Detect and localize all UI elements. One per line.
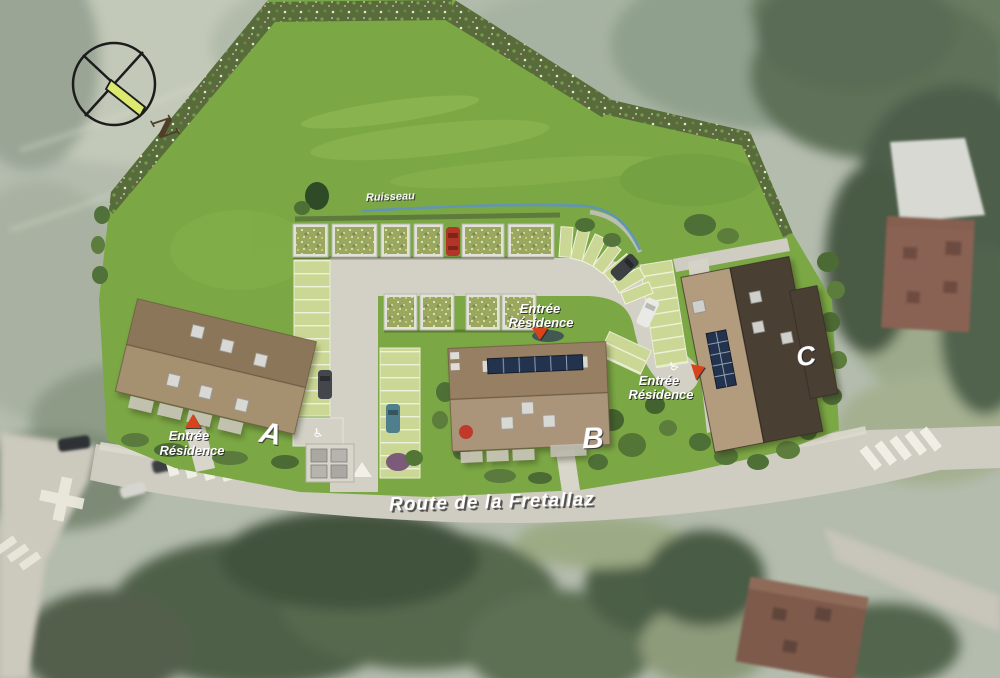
stream-label: Ruisseau: [366, 190, 416, 204]
entrance-label-c-line2: Résidence: [628, 387, 693, 402]
entrance-label-a-line1: Entrée: [169, 428, 209, 443]
entrance-label-c-line1: Entrée: [639, 373, 679, 388]
entrance-label-b-line1: Entrée: [520, 301, 560, 316]
carport-row-top: [293, 224, 554, 258]
site-plan-canvas: ♿ ♿ N Ruisseau Entrée Résidence Entrée R…: [0, 0, 1000, 678]
bin-store: [306, 444, 354, 482]
residence-site-plan: ♿ ♿ N Ruisseau Entrée Résidence Entrée R…: [0, 0, 1000, 678]
handicap-marking-icon: ♿: [313, 426, 324, 440]
neighbor-house-right: [881, 138, 985, 332]
building-b-label: B: [582, 422, 605, 456]
entrance-label-a-line2: Résidence: [159, 443, 224, 458]
entrance-label-b-line2: Résidence: [508, 315, 573, 330]
red-parasol: [459, 425, 473, 439]
